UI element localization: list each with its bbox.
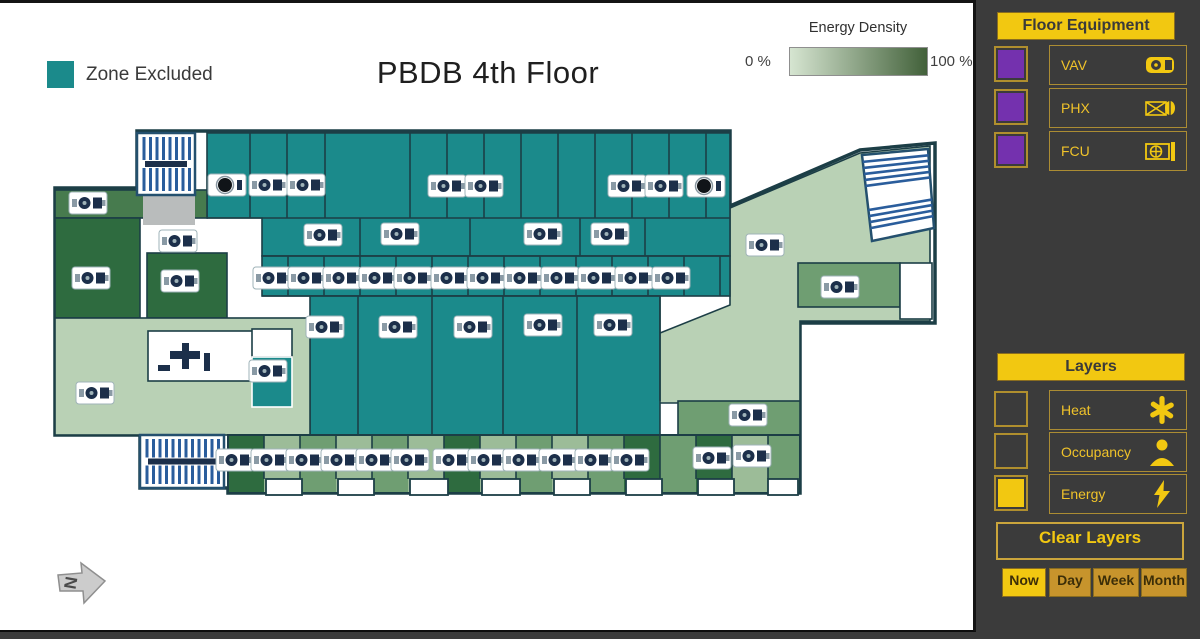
vav-unit-icon[interactable] — [578, 267, 616, 289]
vav-unit-icon[interactable] — [645, 175, 683, 197]
vav-unit-icon[interactable] — [467, 267, 505, 289]
vav-unit-icon[interactable] — [733, 445, 771, 467]
fcu-checkbox[interactable] — [994, 132, 1028, 168]
facade-notch — [554, 479, 590, 495]
fcu-item[interactable]: FCU — [1049, 131, 1187, 171]
phx-icon — [1144, 94, 1178, 122]
vav-unit-icon[interactable] — [729, 404, 767, 426]
vav-unit-icon[interactable] — [524, 314, 562, 336]
fcu-unit-icon[interactable] — [687, 175, 725, 197]
energy-label: Energy — [1061, 486, 1146, 502]
office-zone — [660, 435, 696, 493]
vav-unit-icon[interactable] — [356, 449, 394, 471]
time-button-day[interactable]: Day — [1049, 568, 1091, 597]
heat-item[interactable]: Heat — [1049, 390, 1187, 430]
heat-icon — [1146, 395, 1178, 425]
facade-notch — [338, 479, 374, 495]
vav-unit-icon[interactable] — [249, 360, 287, 382]
energy-item[interactable]: Energy — [1049, 474, 1187, 514]
vav-unit-icon[interactable] — [359, 267, 397, 289]
vav-unit-icon[interactable] — [391, 449, 429, 471]
furniture — [158, 365, 170, 371]
fcu-label: FCU — [1061, 143, 1144, 159]
vav-checkbox[interactable] — [994, 46, 1028, 82]
floor-plan[interactable]: N — [0, 3, 976, 633]
vav-unit-icon[interactable] — [287, 174, 325, 196]
vav-unit-icon[interactable] — [286, 449, 324, 471]
phx-item[interactable]: PHX — [1049, 88, 1187, 128]
facade-notch — [410, 479, 448, 495]
energy-checkbox[interactable] — [994, 475, 1028, 511]
floor-equipment-header: Floor Equipment — [997, 12, 1175, 40]
facade-notch — [768, 479, 798, 495]
vav-unit-icon[interactable] — [159, 230, 197, 252]
vav-unit-icon[interactable] — [216, 449, 254, 471]
north-arrow-icon: N — [58, 563, 105, 603]
vav-unit-icon[interactable] — [76, 382, 114, 404]
vav-unit-icon[interactable] — [304, 224, 342, 246]
fcu-icon — [1144, 137, 1178, 165]
vav-unit-icon[interactable] — [323, 267, 361, 289]
zone-region — [252, 329, 292, 357]
vav-unit-icon[interactable] — [591, 223, 629, 245]
clear-layers-button[interactable]: Clear Layers — [996, 522, 1184, 560]
vav-unit-icon[interactable] — [575, 449, 613, 471]
vav-unit-icon[interactable] — [161, 270, 199, 292]
vav-unit-icon[interactable] — [468, 449, 506, 471]
vav-unit-icon[interactable] — [504, 267, 542, 289]
vav-unit-icon[interactable] — [251, 449, 289, 471]
vav-unit-icon[interactable] — [394, 267, 432, 289]
vav-item[interactable]: VAV — [1049, 45, 1187, 85]
vav-unit-icon[interactable] — [433, 449, 471, 471]
facade-notch — [626, 479, 662, 495]
vav-unit-icon[interactable] — [465, 175, 503, 197]
vav-label: VAV — [1061, 57, 1144, 73]
occupancy-label: Occupancy — [1061, 444, 1146, 460]
furniture — [182, 343, 189, 369]
occupancy-item[interactable]: Occupancy — [1049, 432, 1187, 472]
vav-unit-icon[interactable] — [608, 175, 646, 197]
vav-unit-icon[interactable] — [821, 276, 859, 298]
vav-unit-icon[interactable] — [249, 174, 287, 196]
vav-unit-icon[interactable] — [321, 449, 359, 471]
zone-region — [143, 195, 195, 225]
facade-notch — [482, 479, 520, 495]
furniture — [204, 353, 210, 371]
vav-unit-icon[interactable] — [431, 267, 469, 289]
vav-unit-icon[interactable] — [746, 234, 784, 256]
vav-unit-icon[interactable] — [594, 314, 632, 336]
vav-unit-icon[interactable] — [428, 175, 466, 197]
vav-icon — [1144, 51, 1178, 79]
vav-unit-icon[interactable] — [253, 267, 291, 289]
vav-unit-icon[interactable] — [693, 447, 731, 469]
vav-unit-icon[interactable] — [381, 223, 419, 245]
vav-unit-icon[interactable] — [72, 267, 110, 289]
occupancy-checkbox[interactable] — [994, 433, 1028, 469]
phx-checkbox[interactable] — [994, 89, 1028, 125]
facade-notch — [266, 479, 302, 495]
vav-unit-icon[interactable] — [615, 267, 653, 289]
layers-header: Layers — [997, 353, 1185, 381]
time-button-now[interactable]: Now — [1002, 568, 1046, 597]
zone-region — [900, 263, 932, 319]
vav-unit-icon[interactable] — [288, 267, 326, 289]
vav-unit-icon[interactable] — [306, 316, 344, 338]
vav-unit-icon[interactable] — [611, 449, 649, 471]
fcu-unit-icon[interactable] — [208, 174, 246, 196]
phx-label: PHX — [1061, 100, 1144, 116]
vav-unit-icon[interactable] — [379, 316, 417, 338]
time-button-week[interactable]: Week — [1093, 568, 1139, 597]
time-button-month[interactable]: Month — [1141, 568, 1187, 597]
vav-unit-icon[interactable] — [454, 316, 492, 338]
occupancy-icon — [1146, 437, 1178, 467]
report-canvas: Zone Excluded PBDB 4th Floor Energy Dens… — [0, 0, 976, 632]
energy-icon — [1146, 479, 1178, 509]
vav-unit-icon[interactable] — [539, 449, 577, 471]
heat-label: Heat — [1061, 402, 1146, 418]
vav-unit-icon[interactable] — [69, 192, 107, 214]
facade-notch — [698, 479, 734, 495]
vav-unit-icon[interactable] — [503, 449, 541, 471]
heat-checkbox[interactable] — [994, 391, 1028, 427]
sidebar: Floor Equipment VAV PHX FCU Layers He — [979, 0, 1200, 639]
vav-unit-icon[interactable] — [652, 267, 690, 289]
vav-unit-icon[interactable] — [524, 223, 562, 245]
vav-unit-icon[interactable] — [541, 267, 579, 289]
